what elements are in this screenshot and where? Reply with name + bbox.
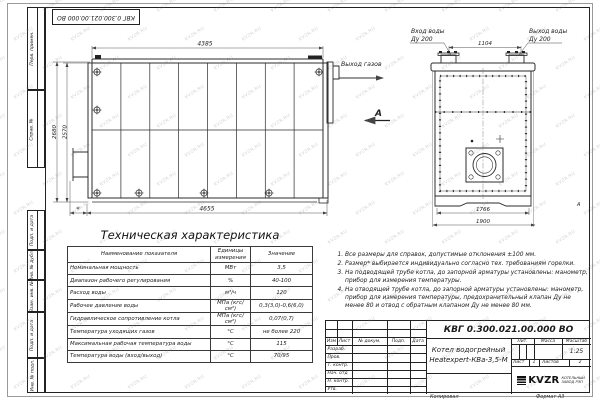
lit-label: Лит. (511, 340, 534, 345)
param-value: 3,5 (251, 263, 313, 275)
boiler-side-view: 4385 4655 2680 2570 * Выход газов А (45, 28, 395, 230)
param-unit: °С (211, 326, 251, 338)
burner-mount-bracket (73, 148, 88, 181)
note-item: Все размеры для справок, допустимые откл… (345, 252, 588, 260)
product-name: Котел водогрейный Heatexpert-КВа-3,5-М (426, 338, 511, 373)
gas-outlet-label: Выход газов (341, 61, 382, 68)
dim-left-inner: 2570 (63, 125, 69, 139)
scale-value: 1:25 (562, 344, 591, 359)
note-item: На отводящей трубе котла, до запорной ар… (345, 287, 588, 310)
sheet-label: Лист (513, 361, 524, 366)
logo-caption-line1: КОТЕЛЬНЫЙ (561, 376, 584, 380)
col-header: Наименование показателя (68, 247, 211, 263)
spec-row: Максимальная рабочая температура воды°С1… (68, 338, 313, 350)
stamp-perv-primen: Перв. примен. (27, 7, 45, 90)
col-data: Дата (410, 340, 426, 345)
param-value: не более 220 (251, 326, 313, 338)
sheets-label: Листов (542, 361, 559, 366)
dim-width-outer: 1900 (476, 219, 490, 225)
hatch-bolts (93, 68, 324, 198)
stamp-label: Взам. инв. № (30, 280, 35, 311)
boiler-front-view: Вход воды Ду 200 Выход воды Ду 200 1104 … (395, 22, 595, 232)
param-name: Максимальная рабочая температура воды (68, 338, 211, 350)
param-name: Температура уходящих газов (68, 326, 211, 338)
mass-label: Масса (534, 340, 562, 345)
param-unit: МВт (211, 263, 251, 275)
doc-number: КВГ 0.300.021.00.000 ВО (426, 321, 591, 338)
asterisk-dim: * (76, 206, 80, 214)
stamp-label: Подп. и дата (30, 319, 35, 350)
company-logo: KVZR КОТЕЛЬНЫЙ ЗАВОД РЭП (511, 366, 591, 394)
watermark-text: KVZR.RU (0, 55, 7, 71)
product-name-line2: Heatexpert-КВа-3,5-М (429, 356, 507, 365)
param-unit: МПа (кгс/см²) (211, 312, 251, 325)
dim-bottom: 4655 (199, 206, 214, 213)
param-name: Температура воды (вход/выход) (68, 350, 211, 362)
row-nachotd: Нач. отд (328, 372, 348, 377)
spec-row: Номинальная мощностьМВт3,5 (68, 263, 313, 275)
spec-row: Гидравлическое сопротивление котлаМПа (к… (68, 312, 313, 325)
stamp-label: Инв. № подл. (30, 360, 35, 392)
stamp-label: Инв. № дубл. (30, 249, 35, 280)
stamp-podp-data-2: Подп. и дата (27, 312, 45, 358)
row-nkontr: Н. контр. (328, 380, 350, 385)
param-value: 40-100 (251, 275, 313, 287)
copy-label: Копировал (430, 394, 459, 400)
front-dimension-lines (433, 46, 536, 227)
dim-left-outer: 2680 (52, 125, 58, 139)
technical-notes: Все размеры для справок, допустимые откл… (334, 252, 588, 312)
inlet-label: Вход воды (411, 28, 445, 35)
row-prov: Пров. (328, 356, 341, 361)
param-name: Диапазон рабочего регулирования (68, 275, 211, 287)
watermark-text: KVZR.RU (0, 0, 7, 14)
stamp-vzam-inv: Взам. инв. № (27, 280, 45, 312)
col-list: Лист (337, 340, 352, 345)
kvzr-logo-icon (517, 376, 526, 385)
top-doc-number-box: КВГ 0.300.021.00.000 ВО (52, 9, 140, 25)
title-block: Изм Лист № докум. Подп. Дата Разраб. Про… (325, 320, 590, 393)
param-name: Номинальная мощность (68, 263, 211, 275)
param-unit: МПа (кгс/см²) (211, 299, 251, 312)
param-unit: °С (211, 350, 251, 362)
sheet-value: 1 (529, 361, 539, 366)
logo-caption: КОТЕЛЬНЫЙ ЗАВОД РЭП (561, 376, 584, 385)
param-unit: м³/ч (211, 287, 251, 299)
stamp-inv-podl: Инв. № подл. (27, 358, 45, 393)
inlet-dn-label: Ду 200 (410, 36, 433, 43)
logo-text: KVZR (528, 375, 559, 386)
param-value: 115 (251, 338, 313, 350)
logo-caption-line2: ЗАВОД РЭП (561, 380, 582, 384)
param-name: Расход воды (68, 287, 211, 299)
watermark-text: KVZR.RU (0, 171, 7, 187)
col-header: Значение (251, 247, 313, 263)
stamp-label: Перв. примен. (30, 31, 35, 66)
row-razrab: Разраб. (328, 348, 346, 353)
param-unit: % (211, 275, 251, 287)
col-header: Единицы измерения (211, 247, 251, 263)
stamp-podp-data-1: Подп. и дата (27, 210, 45, 250)
spec-row: Температура уходящих газов°Сне более 220 (68, 326, 313, 338)
zone-marker: А (576, 202, 581, 208)
outlet-dn-label: Ду 200 (528, 36, 551, 43)
view-a-label: А (374, 109, 382, 119)
drawing-sheet: КВГ 0.300.021.00.000 ВО Перв. примен. Сп… (0, 0, 600, 400)
watermark-text: KVZR.RU (0, 113, 7, 129)
param-name: Рабочее давление воды (68, 299, 211, 312)
dim-width-inner: 1766 (476, 207, 490, 213)
flue-gas-duct (327, 62, 339, 123)
row-utv: Утв. (328, 388, 337, 393)
watermark-text: KVZR.RU (0, 229, 7, 245)
param-unit: °С (211, 338, 251, 350)
watermark-text: KVZR.RU (0, 287, 7, 303)
front-body (431, 51, 535, 206)
product-name-line1: Котел водогрейный (432, 346, 506, 355)
spec-header-row: Наименование показателя Единицы измерени… (68, 247, 313, 263)
burner-opening (466, 135, 504, 182)
spec-row: Рабочее давление водыМПа (кгс/см²)0,3(3,… (68, 299, 313, 312)
dim-top: 4385 (197, 41, 212, 48)
spec-row: Диапазон рабочего регулирования%40-100 (68, 275, 313, 287)
top-doc-number: КВГ 0.300.021.00.000 ВО (57, 14, 135, 21)
spec-table: Наименование показателя Единицы измерени… (67, 246, 313, 363)
format-label: Формат А3 (536, 394, 564, 400)
spec-row: Расход водым³/ч120 (68, 287, 313, 299)
sheets-value: 2 (569, 361, 591, 366)
stamp-inv-dubl: Инв. № дубл. (27, 250, 45, 280)
stamp-label: Подп. и дата (30, 214, 35, 245)
col-docnum: № докум. (352, 340, 387, 345)
stamp-sprav-no: Справ. № (27, 90, 45, 168)
note-item: Размер* выбирается индивидуально согласн… (345, 261, 588, 269)
col-podp: Подп. (387, 340, 410, 345)
note-item: На подводящей трубе котла, до запорной а… (345, 270, 588, 285)
dim-nozzle-spacing: 1104 (478, 41, 492, 47)
param-value: 0,07(0,7) (251, 312, 313, 325)
stamp-label: Справ. № (30, 118, 35, 140)
outlet-label: Выход воды (529, 28, 567, 35)
side-body (88, 55, 328, 203)
param-value: 120 (251, 287, 313, 299)
spec-row: Температура воды (вход/выход)°С70/95 (68, 350, 313, 362)
spec-table-title: Техническая характеристика (76, 228, 304, 242)
col-izm: Изм (326, 340, 337, 345)
watermark-text: KVZR.RU (0, 345, 7, 361)
param-value: 0,3(3,0)-0,6(6,0) (251, 299, 313, 312)
param-name: Гидравлическое сопротивление котла (68, 312, 211, 325)
row-tkontr: Т. контр. (328, 364, 349, 369)
param-value: 70/95 (251, 350, 313, 362)
